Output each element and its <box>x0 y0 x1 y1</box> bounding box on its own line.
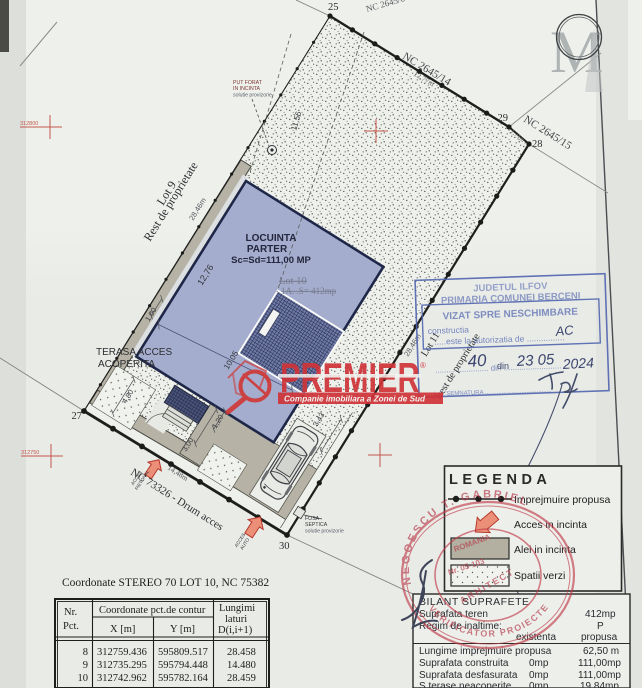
svg-text:ACOPERITA: ACOPERITA <box>98 359 155 370</box>
svg-text:Coordonate STEREO 70 LOT 10, N: Coordonate STEREO 70 LOT 10, NC 75382 <box>62 577 269 589</box>
svg-text:19,84mp: 19,84mp <box>580 681 619 688</box>
svg-text:14.480: 14.480 <box>227 660 256 671</box>
svg-text:2024: 2024 <box>561 354 594 372</box>
svg-text:30: 30 <box>279 541 290 552</box>
svg-text:595782.164: 595782.164 <box>158 673 209 684</box>
svg-text:23 05: 23 05 <box>515 351 555 370</box>
svg-text:Suprafata desfasurata: Suprafata desfasurata <box>419 670 518 681</box>
svg-text:constructia: constructia <box>428 324 470 335</box>
svg-text:28.459: 28.459 <box>227 673 256 684</box>
svg-text:312759.436: 312759.436 <box>97 647 147 658</box>
svg-text:laturi: laturi <box>225 614 247 625</box>
svg-text:D(i,i+1): D(i,i+1) <box>218 625 253 636</box>
svg-text:111,00mp: 111,00mp <box>578 670 621 681</box>
svg-text:29: 29 <box>498 113 509 124</box>
svg-text:62,50 m: 62,50 m <box>583 646 619 657</box>
svg-text:10: 10 <box>78 673 89 684</box>
svg-text:595794.448: 595794.448 <box>158 660 208 671</box>
svg-text:28.458: 28.458 <box>227 647 256 658</box>
svg-text:X [m]: X [m] <box>110 624 135 635</box>
svg-text:0mp: 0mp <box>529 681 549 688</box>
svg-text:Sc=Sd=111,00 MP: Sc=Sd=111,00 MP <box>231 255 311 266</box>
svg-text:595809.517: 595809.517 <box>158 647 208 658</box>
svg-text:0mp: 0mp <box>529 658 549 669</box>
svg-text:®: ® <box>420 361 426 370</box>
svg-text:S terase neacoperite: S terase neacoperite <box>419 681 512 688</box>
svg-text:Lungimi: Lungimi <box>219 603 255 614</box>
svg-text:Companie imobiliara a Zonei de: Companie imobiliara a Zonei de Sud <box>284 395 426 404</box>
svg-text:312735.295: 312735.295 <box>97 660 147 671</box>
svg-text:AC: AC <box>554 322 575 339</box>
svg-text:312742.962: 312742.962 <box>97 673 147 684</box>
svg-text:111,00mp: 111,00mp <box>578 658 621 669</box>
svg-text:28: 28 <box>532 139 543 150</box>
svg-text:9: 9 <box>83 660 88 671</box>
svg-text:LOCUINTA: LOCUINTA <box>246 233 297 244</box>
svg-text:27: 27 <box>72 411 83 422</box>
svg-text:8: 8 <box>83 647 88 658</box>
svg-text:Pct.: Pct. <box>63 621 79 632</box>
svg-text:0mp: 0mp <box>529 670 549 681</box>
svg-text:Nr.: Nr. <box>64 607 77 618</box>
svg-text:Spatii verzi: Spatii verzi <box>514 570 565 582</box>
svg-text:TERASA ACCES: TERASA ACCES <box>96 347 172 358</box>
svg-text:PARTER: PARTER <box>247 244 288 255</box>
svg-text:Coordonate pct.de contur: Coordonate pct.de contur <box>99 605 206 616</box>
svg-text:din: din <box>497 361 509 371</box>
svg-text:P: P <box>597 621 604 632</box>
svg-text:412mp: 412mp <box>585 609 616 620</box>
svg-text:40: 40 <box>467 351 488 371</box>
svg-text:SEPTICA: SEPTICA <box>305 522 328 528</box>
svg-text:312800: 312800 <box>20 121 38 127</box>
svg-text:Suprafata construita: Suprafata construita <box>419 658 509 669</box>
svg-text:IN INCINTA: IN INCINTA <box>233 86 261 92</box>
svg-text:solutie provizorie: solutie provizorie <box>305 529 344 535</box>
svg-text:LEGENDA: LEGENDA <box>449 472 551 488</box>
svg-text:Y [m]: Y [m] <box>170 624 195 635</box>
svg-text:25: 25 <box>328 2 339 13</box>
svg-text:312750: 312750 <box>21 450 39 456</box>
svg-text:solutie provizorie: solutie provizorie <box>233 93 272 99</box>
svg-text:propusa: propusa <box>581 632 618 643</box>
svg-text:1A. .S= 412mp: 1A. .S= 412mp <box>281 286 337 296</box>
